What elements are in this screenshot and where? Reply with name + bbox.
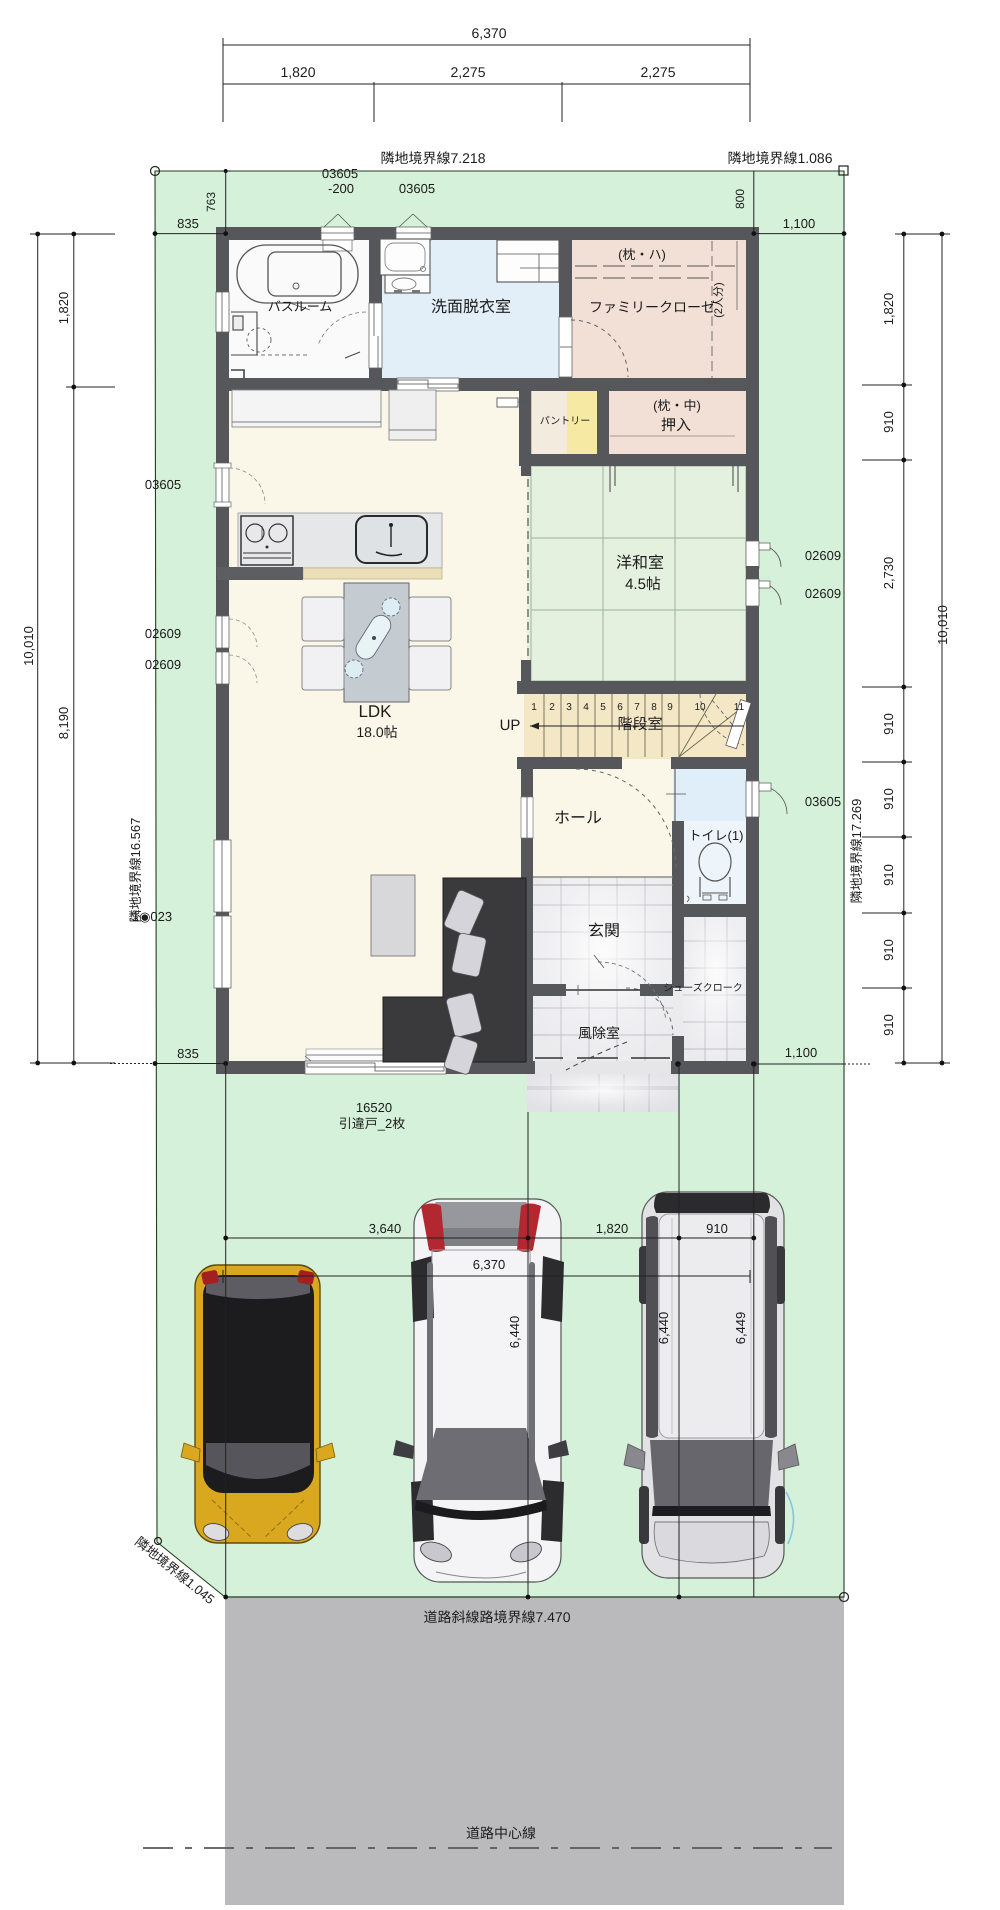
- svg-text:1,820: 1,820: [881, 293, 896, 326]
- svg-text:910: 910: [881, 1014, 896, 1036]
- svg-text:1: 1: [531, 702, 537, 713]
- svg-text:910: 910: [881, 939, 896, 961]
- svg-text:玄関: 玄関: [588, 922, 620, 940]
- svg-text:6,370: 6,370: [471, 25, 506, 41]
- svg-text:(枕・中): (枕・中): [653, 398, 701, 413]
- svg-text:隣地境界線7.218: 隣地境界線7.218: [380, 150, 485, 166]
- svg-text:2,275: 2,275: [640, 64, 675, 80]
- svg-text:1,820: 1,820: [56, 292, 71, 325]
- svg-text:隣地境界線17.269: 隣地境界線17.269: [849, 799, 864, 904]
- svg-text:10,010: 10,010: [21, 626, 36, 666]
- svg-text:1,100: 1,100: [785, 1045, 818, 1060]
- svg-text:道路斜線路境界線7.470: 道路斜線路境界線7.470: [423, 1609, 570, 1625]
- svg-text:910: 910: [706, 1221, 728, 1236]
- svg-text:押入: 押入: [661, 417, 691, 434]
- svg-text:03605: 03605: [322, 166, 358, 181]
- svg-text:1,820: 1,820: [280, 64, 315, 80]
- svg-text:02609: 02609: [805, 586, 841, 601]
- svg-text:6,370: 6,370: [473, 1257, 506, 1272]
- svg-text:03605: 03605: [399, 181, 435, 196]
- svg-text:2,730: 2,730: [881, 557, 896, 590]
- svg-text:8: 8: [651, 702, 657, 713]
- svg-text:8,190: 8,190: [56, 707, 71, 740]
- svg-text:02609: 02609: [145, 657, 181, 672]
- svg-text:UP: UP: [500, 717, 521, 734]
- svg-text:16520: 16520: [356, 1100, 392, 1115]
- svg-text:11: 11: [734, 702, 745, 713]
- svg-text:パントリー: パントリー: [540, 415, 591, 427]
- svg-text:7: 7: [634, 702, 640, 713]
- svg-text:18.0帖: 18.0帖: [356, 724, 397, 740]
- svg-text:10: 10: [694, 702, 706, 713]
- svg-text:02609: 02609: [145, 626, 181, 641]
- svg-text:1,100: 1,100: [783, 216, 816, 231]
- svg-text:洗面脱衣室: 洗面脱衣室: [431, 298, 511, 316]
- svg-text:5: 5: [600, 702, 606, 713]
- svg-text:6: 6: [617, 702, 623, 713]
- svg-text:階段室: 階段室: [617, 716, 662, 733]
- svg-text:(2人分): (2人分): [712, 282, 725, 317]
- svg-text:835: 835: [177, 1046, 199, 1061]
- svg-text:10,010: 10,010: [935, 605, 950, 645]
- svg-text:引違戸_2枚: 引違戸_2枚: [339, 1116, 405, 1131]
- svg-text:910: 910: [881, 864, 896, 886]
- svg-text:2: 2: [549, 702, 555, 713]
- svg-text:835: 835: [177, 216, 199, 231]
- svg-text:バスルーム: バスルーム: [268, 299, 333, 314]
- svg-text:763: 763: [204, 192, 218, 212]
- svg-text:2,275: 2,275: [450, 64, 485, 80]
- svg-text:4: 4: [583, 702, 589, 713]
- svg-text:ファミリークローゼ: ファミリークローゼ: [589, 299, 715, 315]
- svg-text:(枕・ハ): (枕・ハ): [618, 247, 666, 262]
- svg-text:隣地境界線16.567: 隣地境界線16.567: [128, 818, 143, 923]
- svg-text:3,640: 3,640: [369, 1221, 402, 1236]
- svg-text:1◉023: 1◉023: [132, 909, 172, 924]
- svg-text:トイレ(1): トイレ(1): [689, 828, 744, 843]
- svg-text:9: 9: [667, 702, 673, 713]
- svg-text:隣地境界線1.086: 隣地境界線1.086: [727, 150, 832, 166]
- svg-text:ホール: ホール: [554, 810, 602, 827]
- svg-text:道路中心線: 道路中心線: [466, 1825, 536, 1841]
- svg-text:1,820: 1,820: [596, 1221, 629, 1236]
- svg-text:03605: 03605: [805, 794, 841, 809]
- svg-text:洋和室: 洋和室: [616, 554, 664, 572]
- svg-text:LDK: LDK: [358, 702, 392, 721]
- svg-text:-200: -200: [328, 181, 354, 196]
- svg-text:風除室: 風除室: [578, 1025, 620, 1041]
- svg-text:6,449: 6,449: [733, 1312, 748, 1345]
- svg-text:6,440: 6,440: [507, 1316, 522, 1349]
- svg-text:シューズクローク: シューズクローク: [663, 982, 743, 994]
- svg-text:02609: 02609: [805, 548, 841, 563]
- svg-text:6,440: 6,440: [656, 1312, 671, 1345]
- svg-text:800: 800: [733, 189, 747, 209]
- svg-text:910: 910: [881, 788, 896, 810]
- svg-text:910: 910: [881, 713, 896, 735]
- svg-text:03605: 03605: [145, 477, 181, 492]
- svg-text:3: 3: [566, 702, 572, 713]
- svg-text:4.5帖: 4.5帖: [625, 576, 661, 593]
- svg-text:910: 910: [881, 411, 896, 433]
